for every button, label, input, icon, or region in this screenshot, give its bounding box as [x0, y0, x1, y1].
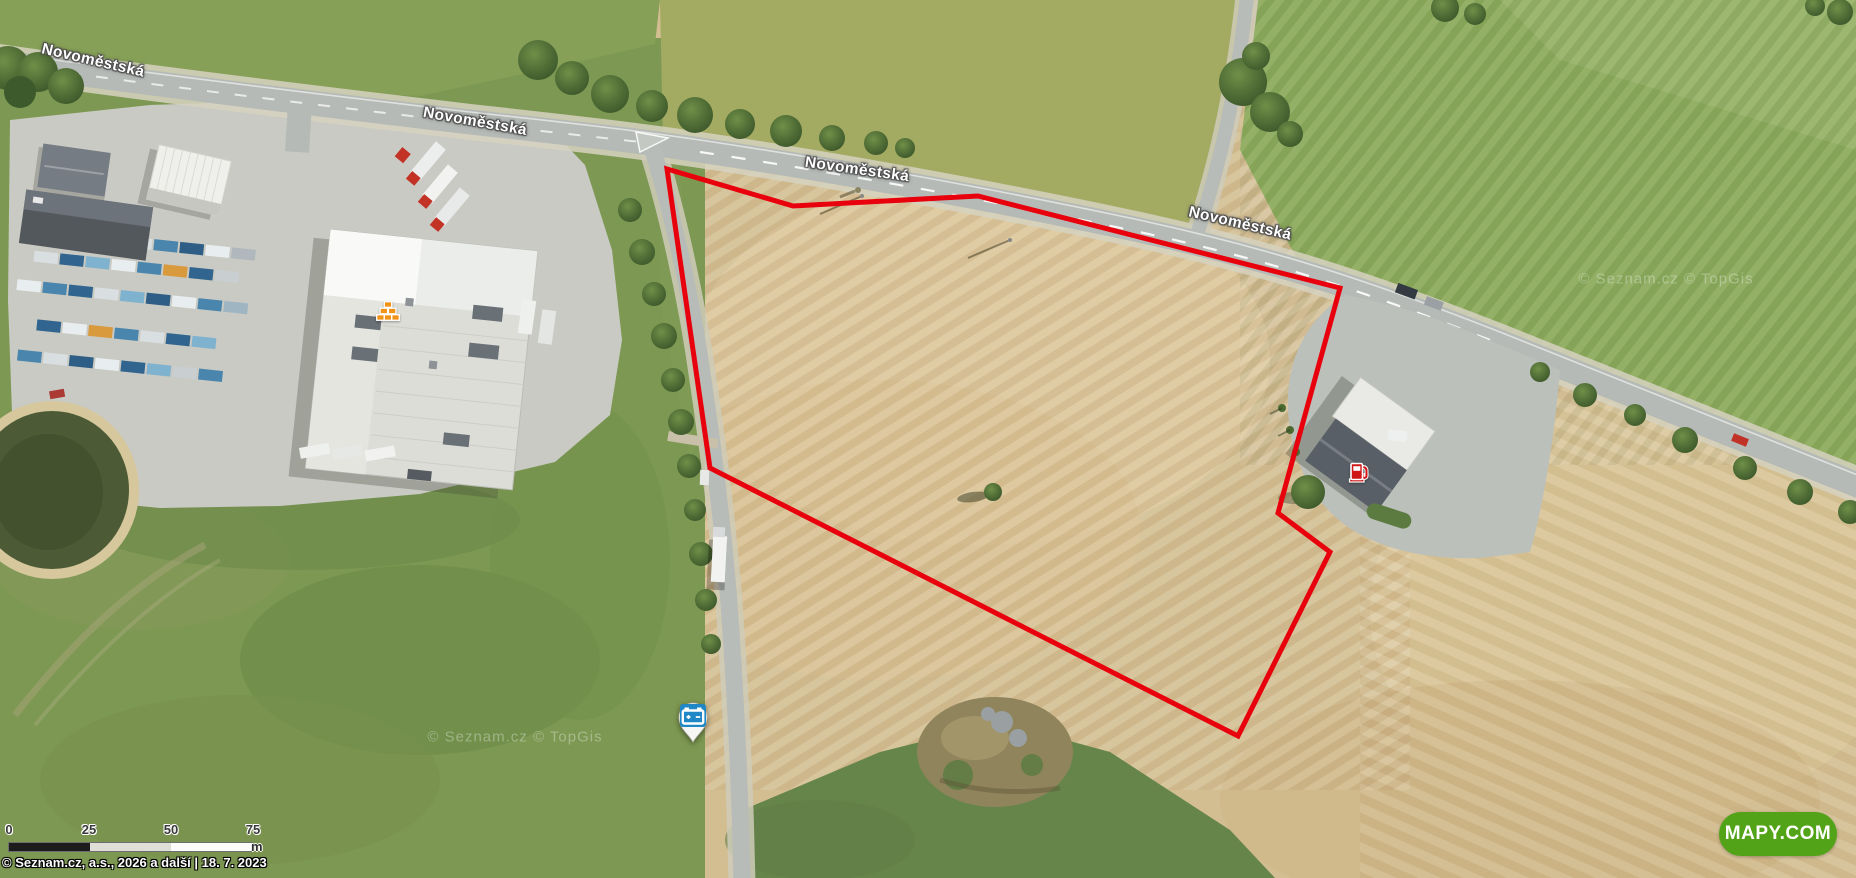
aerial-imagery — [0, 0, 1856, 878]
pond — [0, 406, 134, 574]
bricks-icon — [377, 302, 400, 321]
dirt-mound — [917, 697, 1073, 807]
scale-tick: 50 — [164, 822, 178, 837]
battery-poi-pin[interactable] — [671, 696, 715, 744]
warehouse-building — [289, 228, 538, 500]
fuel-station-icon[interactable] — [1348, 458, 1370, 484]
scale-tick: 0 — [5, 822, 12, 837]
building-materials-icon[interactable] — [376, 301, 400, 322]
tile-watermark: © Seznam.cz © TopGis — [1578, 271, 1753, 288]
scale-bar: 0 25 50 75 m — [0, 822, 290, 858]
house — [33, 143, 111, 201]
scale-tick: 25 — [82, 822, 96, 837]
mapy-logo-text: MAPY.COM — [1725, 823, 1831, 845]
mapy-logo[interactable]: MAPY.COM — [1719, 812, 1837, 856]
scale-bar-segments — [8, 842, 253, 852]
tile-watermark: © Seznam.cz © TopGis — [427, 729, 602, 746]
map-viewport[interactable]: Novoměstská Novoměstská Novoměstská Novo… — [0, 0, 1856, 878]
scale-tick: 75 — [246, 822, 260, 837]
fuel-pump-icon — [1350, 464, 1367, 483]
attribution[interactable]: © Seznam.cz, a.s., 2026 a další | 18. 7.… — [2, 855, 267, 870]
scale-unit: m — [251, 839, 263, 854]
